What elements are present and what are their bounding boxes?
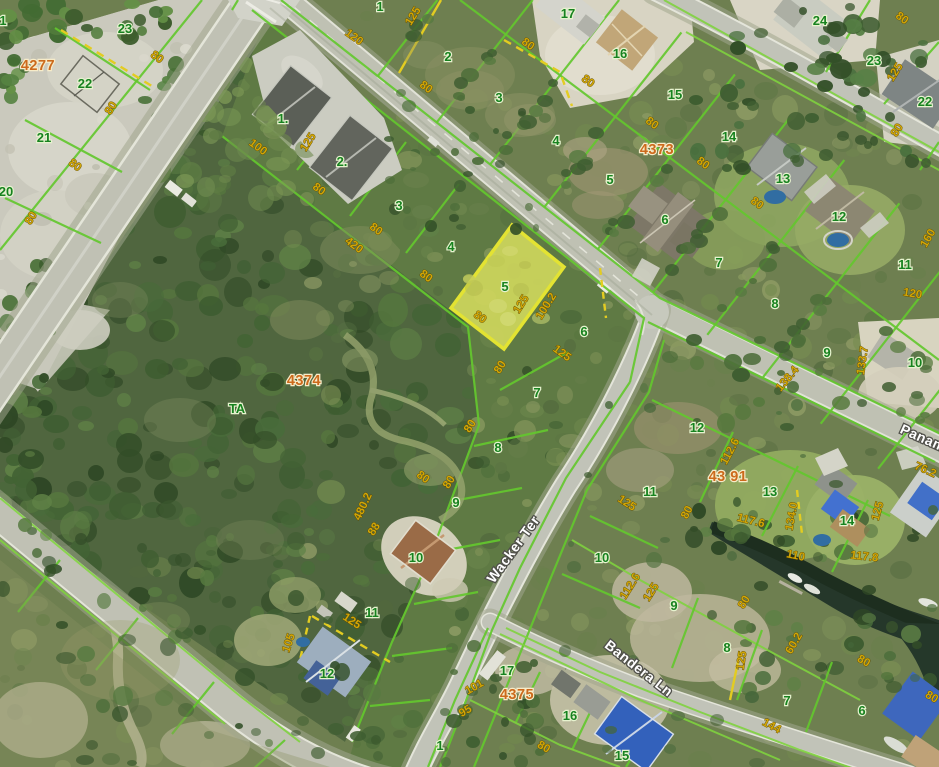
svg-text:11: 11 bbox=[643, 484, 657, 499]
svg-text:14: 14 bbox=[840, 513, 855, 528]
svg-text:4375: 4375 bbox=[500, 687, 534, 703]
svg-text:17: 17 bbox=[561, 6, 575, 21]
svg-text:15: 15 bbox=[668, 87, 682, 102]
svg-text:4277: 4277 bbox=[21, 58, 55, 74]
svg-text:16: 16 bbox=[613, 46, 627, 61]
svg-text:24: 24 bbox=[813, 13, 828, 28]
svg-text:1.: 1. bbox=[278, 111, 289, 126]
svg-text:15: 15 bbox=[615, 748, 629, 763]
svg-text:1: 1 bbox=[436, 738, 443, 753]
svg-text:22: 22 bbox=[78, 76, 92, 91]
svg-text:8: 8 bbox=[771, 296, 778, 311]
svg-text:10: 10 bbox=[409, 550, 423, 565]
svg-text:8: 8 bbox=[723, 640, 730, 655]
svg-text:12: 12 bbox=[832, 209, 846, 224]
svg-text:22: 22 bbox=[918, 94, 932, 109]
svg-text:4374: 4374 bbox=[287, 373, 321, 389]
svg-text:11: 11 bbox=[365, 605, 379, 620]
svg-text:13: 13 bbox=[763, 484, 777, 499]
svg-text:7: 7 bbox=[715, 255, 722, 270]
svg-text:9: 9 bbox=[823, 345, 830, 360]
svg-text:2.: 2. bbox=[337, 154, 348, 169]
svg-text:43 91: 43 91 bbox=[709, 469, 748, 485]
svg-text:6: 6 bbox=[580, 324, 587, 339]
svg-text:12: 12 bbox=[690, 420, 704, 435]
svg-text:10: 10 bbox=[908, 355, 922, 370]
svg-text:2: 2 bbox=[444, 49, 451, 64]
svg-text:4: 4 bbox=[447, 239, 455, 254]
svg-text:21: 21 bbox=[37, 130, 51, 145]
svg-text:9: 9 bbox=[452, 495, 459, 510]
svg-text:7: 7 bbox=[783, 693, 790, 708]
svg-text:23: 23 bbox=[118, 21, 132, 36]
svg-text:13: 13 bbox=[776, 171, 790, 186]
svg-text:7: 7 bbox=[533, 385, 540, 400]
svg-text:4373: 4373 bbox=[640, 142, 674, 158]
svg-text:6: 6 bbox=[858, 703, 865, 718]
svg-text:9: 9 bbox=[670, 598, 677, 613]
svg-text:3: 3 bbox=[395, 198, 402, 213]
svg-text:10: 10 bbox=[595, 550, 609, 565]
svg-text:6: 6 bbox=[661, 212, 668, 227]
svg-text:20: 20 bbox=[0, 184, 13, 199]
svg-text:12: 12 bbox=[320, 666, 334, 681]
svg-text:TA: TA bbox=[229, 401, 246, 416]
svg-text:5: 5 bbox=[501, 279, 508, 294]
svg-text:4: 4 bbox=[552, 133, 560, 148]
svg-text:16: 16 bbox=[563, 708, 577, 723]
svg-text:3: 3 bbox=[495, 90, 502, 105]
svg-text:5: 5 bbox=[606, 172, 613, 187]
svg-text:14: 14 bbox=[722, 129, 737, 144]
svg-text:1: 1 bbox=[0, 13, 7, 28]
svg-text:11: 11 bbox=[898, 257, 912, 272]
svg-text:23: 23 bbox=[867, 53, 881, 68]
svg-text:17: 17 bbox=[500, 663, 514, 678]
svg-text:1: 1 bbox=[376, 0, 383, 14]
svg-text:8: 8 bbox=[494, 440, 501, 455]
